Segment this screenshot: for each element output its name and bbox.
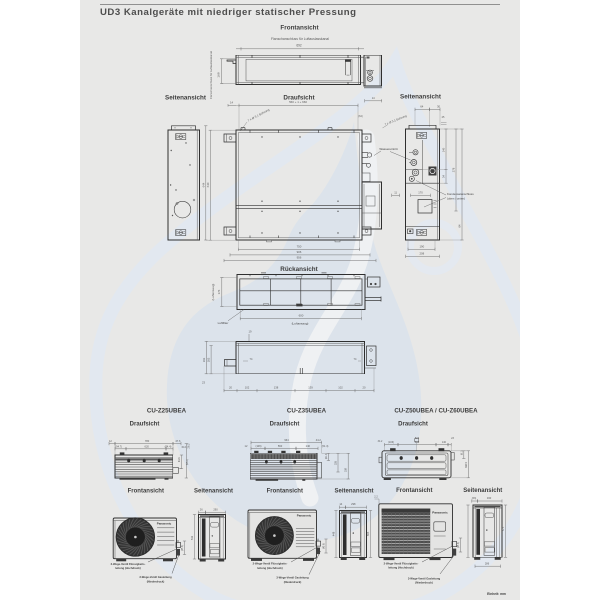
svg-text:(106): (106): [255, 444, 261, 448]
svg-text:(45.6): (45.6): [324, 543, 326, 549]
svg-text:Panasonic: Panasonic: [432, 511, 448, 515]
svg-text:Draufsicht: Draufsicht: [270, 422, 300, 428]
svg-text:170: 170: [418, 191, 423, 195]
svg-text:140: 140: [442, 147, 446, 152]
svg-text:290: 290: [213, 507, 218, 511]
svg-text:(Luftansaug): (Luftansaug): [292, 321, 309, 325]
svg-text:298: 298: [351, 502, 356, 506]
svg-text:Draufsicht: Draufsicht: [398, 422, 428, 428]
svg-text:168: 168: [217, 72, 221, 77]
svg-text:Seitenansicht: Seitenansicht: [194, 489, 233, 495]
svg-text:64: 64: [458, 224, 462, 227]
svg-text:(84.4): (84.4): [165, 444, 172, 448]
svg-text:14: 14: [230, 100, 234, 104]
svg-text:560: 560: [415, 440, 420, 444]
svg-text:2.2: 2.2: [374, 495, 378, 498]
svg-text:3-Wege-Ventil Gasleitung: 3-Wege-Ventil Gasleitung: [408, 576, 441, 580]
svg-text:Luftfilter: Luftfilter: [218, 321, 229, 325]
svg-text:UD3 Kanalgeräte mit niedriger: UD3 Kanalgeräte mit niedriger statischer…: [100, 7, 356, 18]
svg-text:448: 448: [332, 531, 336, 536]
svg-text:Draufsicht: Draufsicht: [130, 422, 160, 428]
svg-text:575: 575: [501, 526, 505, 531]
svg-text:138: 138: [274, 385, 279, 389]
svg-text:3-Wege-Ventil Gasleitung: 3-Wege-Ventil Gasleitung: [276, 576, 309, 580]
svg-text:368.5: 368.5: [465, 461, 468, 468]
svg-text:Panasonic: Panasonic: [297, 513, 312, 517]
svg-text:leitung (Hochdruck): leitung (Hochdruck): [115, 566, 140, 570]
svg-text:(61.4): (61.4): [325, 453, 328, 459]
svg-text:63.6: 63.6: [178, 457, 181, 462]
svg-text:595: 595: [366, 531, 370, 536]
svg-text:Frontansicht: Frontansicht: [396, 488, 432, 494]
svg-text:44.2: 44.2: [316, 438, 322, 442]
svg-text:Seitenansicht: Seitenansicht: [400, 94, 442, 101]
svg-text:964: 964: [284, 438, 289, 442]
svg-text:3-Wege-Ventil Gasleitung: 3-Wege-Ventil Gasleitung: [139, 575, 172, 579]
svg-text:2-Wege-Ventil Flüssigkeits-: 2-Wege-Ventil Flüssigkeits-: [111, 562, 146, 566]
svg-text:102: 102: [245, 385, 250, 389]
svg-text:23: 23: [202, 381, 205, 385]
svg-text:Frontansicht: Frontansicht: [128, 489, 164, 495]
svg-text:(Niederdruck): (Niederdruck): [284, 580, 302, 584]
svg-text:692: 692: [296, 44, 302, 48]
svg-text:CU-Z35UBEA: CU-Z35UBEA: [287, 408, 327, 415]
svg-text:330: 330: [487, 496, 492, 500]
svg-text:14: 14: [372, 96, 375, 100]
svg-text:Einheit: mm: Einheit: mm: [487, 592, 506, 596]
svg-text:Seitenansicht: Seitenansicht: [463, 488, 502, 494]
svg-text:(Niederdruck): (Niederdruck): [415, 581, 433, 585]
svg-text:163: 163: [207, 357, 211, 362]
svg-text:20: 20: [363, 385, 366, 389]
svg-text:542: 542: [190, 535, 194, 540]
svg-text:CU-Z25UBEA: CU-Z25UBEA: [147, 408, 187, 415]
svg-text:640: 640: [206, 182, 210, 187]
svg-text:(61.4): (61.4): [322, 444, 329, 448]
svg-text:Wassereintritt: Wassereintritt: [379, 147, 397, 151]
svg-text:780: 780: [145, 439, 150, 443]
svg-text:139: 139: [308, 385, 313, 389]
svg-text:Rückansicht: Rückansicht: [280, 266, 318, 273]
svg-text:328: 328: [334, 460, 337, 465]
svg-text:620: 620: [145, 444, 150, 448]
svg-text:2-Wege-Ventil Flüssigkeits-: 2-Wege-Ventil Flüssigkeits-: [384, 561, 419, 565]
svg-text:102: 102: [338, 385, 343, 389]
svg-text:750: 750: [297, 244, 302, 248]
svg-text:644: 644: [201, 182, 205, 187]
svg-text:47.6: 47.6: [175, 439, 181, 443]
svg-text:Panasonic: Panasonic: [157, 521, 172, 525]
svg-text:140: 140: [306, 444, 311, 448]
svg-text:Flanschanschluss für Luftausla: Flanschanschluss für Luftauslasskanal: [209, 51, 213, 99]
svg-text:(Luftansaug): (Luftansaug): [211, 284, 215, 301]
svg-text:(106): (106): [388, 441, 394, 444]
svg-text:(63): (63): [472, 497, 477, 500]
svg-text:Seitenansicht: Seitenansicht: [334, 489, 373, 495]
svg-text:600: 600: [299, 314, 304, 318]
svg-text:2-Wege-Ventil Flüssigkeits-: 2-Wege-Ventil Flüssigkeits-: [253, 562, 288, 566]
svg-text:Flanschanschluss für Luftausla: Flanschanschluss für Luftauslasskanal: [271, 37, 329, 41]
svg-text:560 + 1 + 660: 560 + 1 + 660: [289, 100, 307, 104]
svg-text:278: 278: [452, 167, 456, 172]
svg-text:leitung (Hochdruck): leitung (Hochdruck): [257, 566, 282, 570]
svg-text:140: 140: [442, 441, 447, 444]
svg-text:190: 190: [419, 244, 424, 248]
svg-text:191: 191: [202, 357, 206, 362]
svg-text:823: 823: [415, 436, 420, 440]
svg-text:64: 64: [420, 105, 424, 109]
svg-text:286: 286: [485, 561, 490, 565]
svg-text:leitung (Hochdruck): leitung (Hochdruck): [388, 566, 413, 570]
svg-text:34.2: 34.2: [378, 440, 383, 443]
svg-text:560: 560: [278, 444, 283, 448]
svg-text:CU-Z50UBEA / CU-Z60UBEA: CU-Z50UBEA / CU-Z60UBEA: [394, 408, 478, 415]
svg-text:Seitenansicht: Seitenansicht: [165, 94, 207, 101]
svg-text:Frontansicht: Frontansicht: [280, 25, 319, 32]
svg-text:(Niederdruck): (Niederdruck): [147, 580, 165, 584]
svg-text:956: 956: [297, 256, 302, 260]
svg-text:906: 906: [297, 250, 302, 254]
svg-text:(45.6): (45.6): [182, 545, 184, 551]
svg-text:(45.6): (45.6): [458, 542, 460, 548]
svg-text:19: 19: [249, 330, 252, 334]
svg-text:(64): (64): [358, 115, 362, 118]
svg-text:Frontansicht: Frontansicht: [267, 489, 303, 495]
svg-text:20: 20: [229, 385, 232, 389]
svg-text:208: 208: [419, 251, 424, 255]
svg-text:176: 176: [217, 289, 221, 294]
svg-text:339: 339: [345, 467, 348, 472]
svg-text:26.3: 26.3: [188, 443, 191, 448]
svg-text:(94.7): (94.7): [115, 444, 122, 448]
